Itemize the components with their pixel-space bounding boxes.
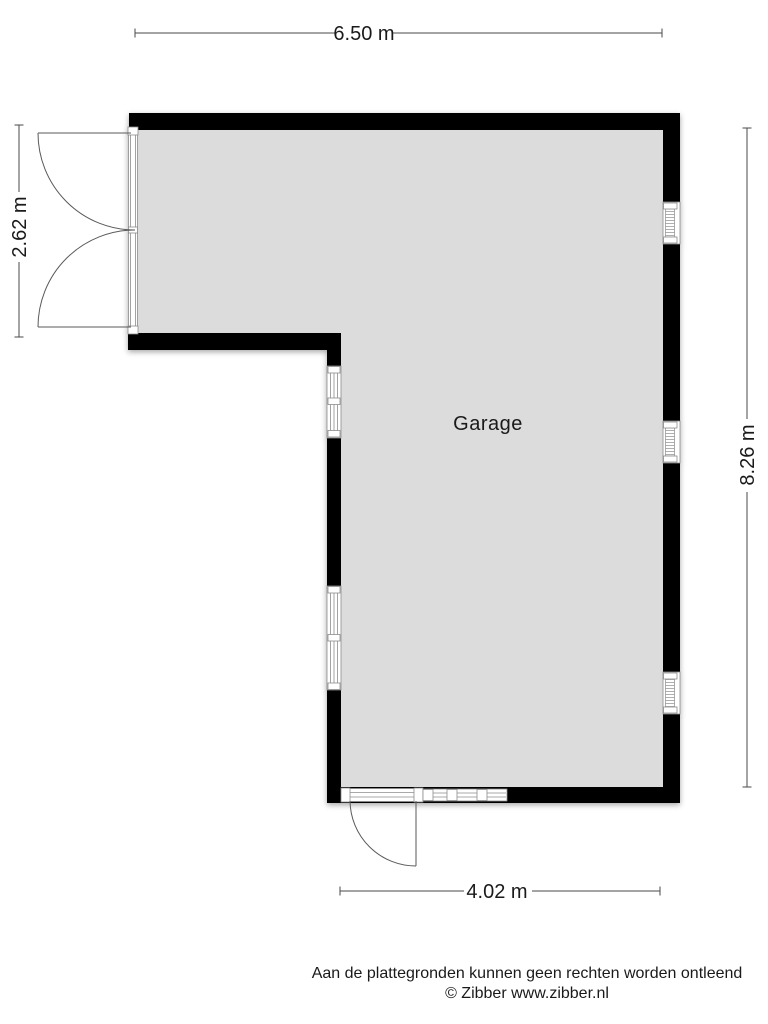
floorplan-svg: 6.50 m 2.62 m 8.26 m 4.02 m Garage Aan d… [0, 0, 768, 1024]
window-right-2 [663, 421, 680, 463]
door-bottom-sill [341, 788, 423, 802]
dimension-bottom: 4.02 m [340, 881, 660, 903]
door-bottom [350, 801, 416, 866]
dimension-top: 6.50 m [135, 23, 662, 45]
window-right-1 [663, 202, 680, 244]
double-door-left [38, 133, 135, 327]
dimension-right-label: 8.26 m [737, 424, 759, 485]
dimension-left-label: 2.62 m [9, 196, 31, 257]
dimension-top-label: 6.50 m [333, 23, 394, 45]
window-bottom [423, 789, 507, 801]
garage-structure [128, 113, 680, 803]
window-left-1 [327, 366, 341, 438]
dimension-right: 8.26 m [737, 128, 759, 787]
garage-floor [136, 130, 663, 787]
copyright-text: © Zibber www.zibber.nl [445, 985, 609, 1002]
wall-step [128, 333, 341, 350]
dimension-bottom-label: 4.02 m [466, 881, 527, 903]
window-left-2 [327, 586, 341, 690]
dimension-left: 2.62 m [9, 125, 31, 337]
room-label: Garage [453, 413, 523, 435]
floorplan-page: 6.50 m 2.62 m 8.26 m 4.02 m Garage Aan d… [0, 0, 768, 1024]
disclaimer-text: Aan de plattegronden kunnen geen rechten… [312, 965, 743, 982]
wall-top [129, 113, 680, 130]
window-right-3 [663, 672, 680, 714]
